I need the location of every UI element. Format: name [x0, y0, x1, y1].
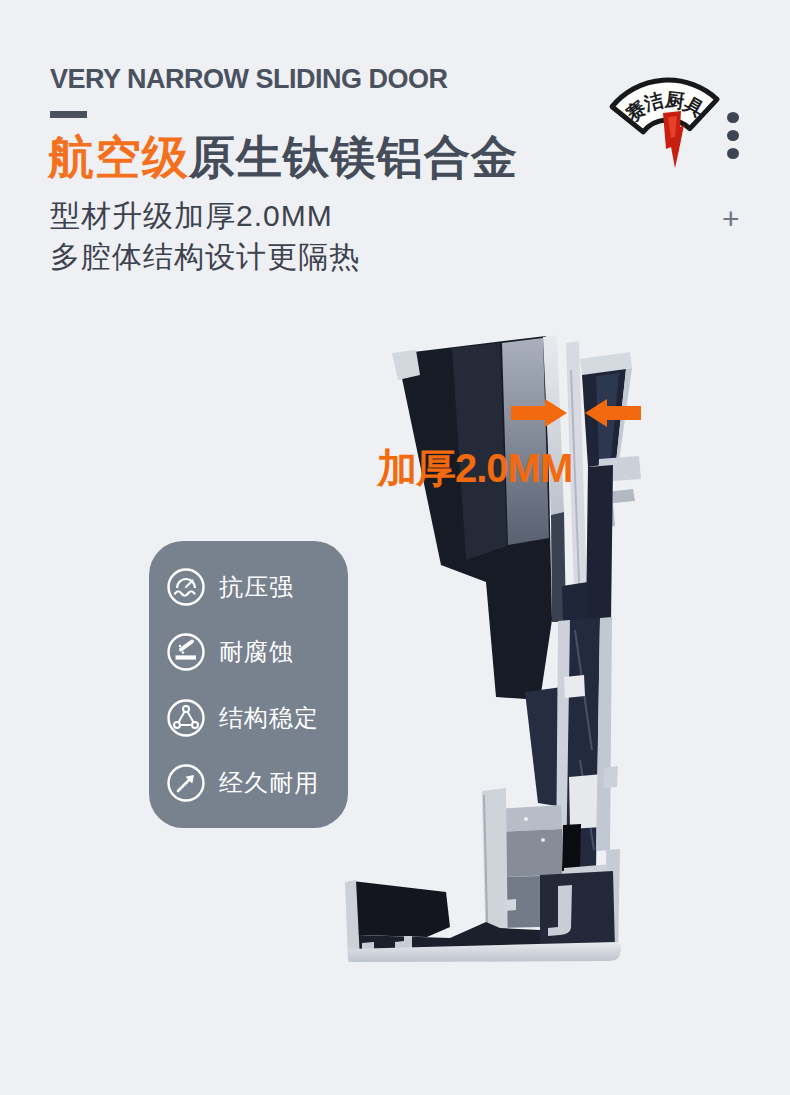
subtitle-line-1: 型材升级加厚2.0MM — [50, 196, 333, 237]
feature-label: 经久耐用 — [219, 767, 319, 799]
dot-icon — [727, 148, 739, 159]
feature-item: 耐腐蚀 — [166, 632, 348, 672]
arrow-shaft — [511, 406, 545, 420]
dot-icon — [727, 130, 739, 141]
feature-item: 抗压强 — [166, 567, 348, 607]
tagline: VERY NARROW SLIDING DOOR — [50, 64, 448, 95]
decor-dots — [727, 112, 739, 159]
thickness-arrow-left — [585, 399, 641, 427]
promo-page: VERY NARROW SLIDING DOOR 航空级原生钛镁铝合金 型材升级… — [0, 0, 790, 1095]
durability-arrow-icon — [166, 763, 206, 803]
thickness-label: 加厚2.0MM — [377, 441, 572, 496]
feature-label: 抗压强 — [219, 571, 294, 603]
tagline-underline — [50, 111, 87, 118]
feature-label: 结构稳定 — [219, 702, 319, 734]
title-rest: 原生钛镁铝合金 — [189, 131, 518, 183]
stable-structure-icon — [166, 698, 206, 738]
arrow-shaft — [607, 406, 641, 420]
subtitle-line-2: 多腔体结构设计更隔热 — [50, 237, 360, 278]
features-card: 抗压强 耐腐蚀 — [149, 541, 348, 828]
arrow-head — [585, 399, 607, 427]
feature-item: 结构稳定 — [166, 698, 348, 738]
thickness-arrow-right — [511, 399, 567, 427]
aluminum-profile-illustration — [300, 330, 700, 990]
plus-icon: + — [722, 202, 740, 236]
pressure-gauge-icon — [166, 567, 206, 607]
feature-item: 经久耐用 — [166, 763, 348, 803]
corrosion-resistance-icon — [166, 632, 206, 672]
title-highlight: 航空级 — [48, 131, 189, 183]
dot-icon — [727, 112, 739, 123]
product-photo — [300, 330, 700, 990]
feature-label: 耐腐蚀 — [219, 636, 294, 668]
arrow-head — [545, 399, 567, 427]
page-title: 航空级原生钛镁铝合金 — [48, 127, 518, 189]
